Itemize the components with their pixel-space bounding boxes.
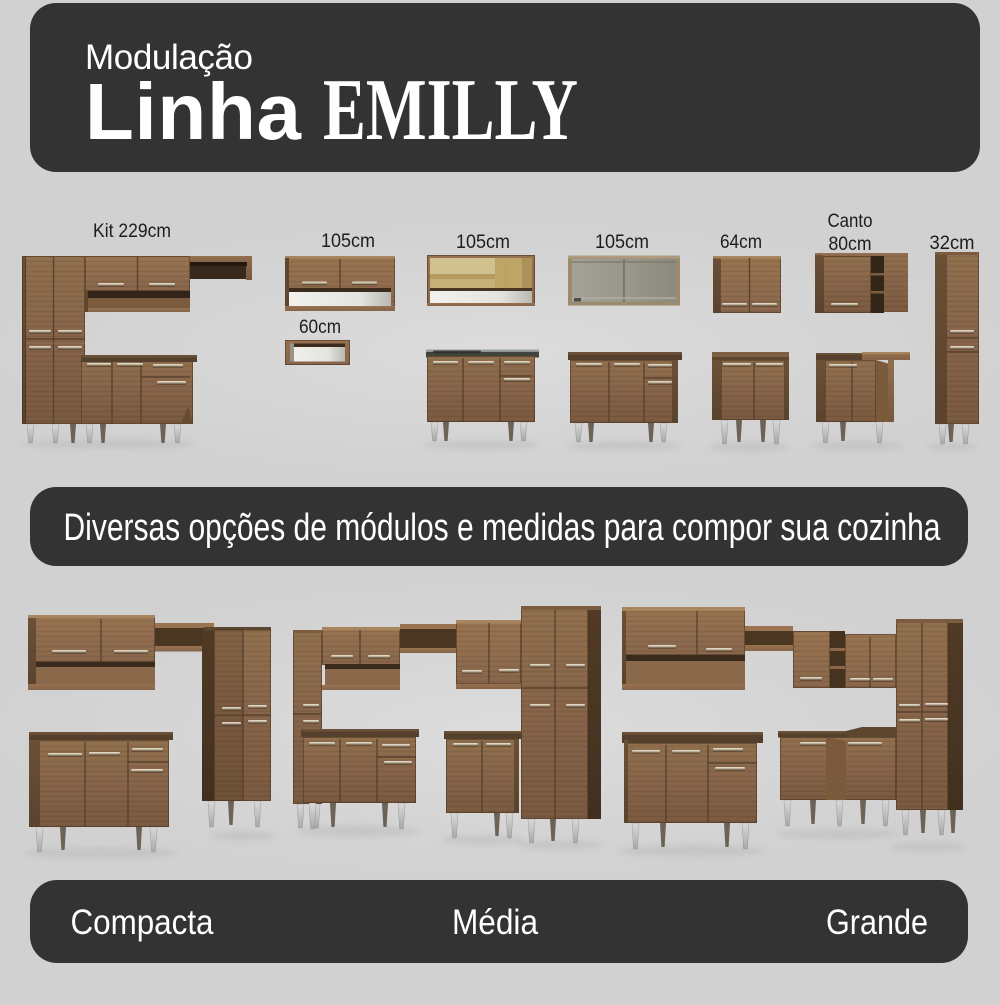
svg-text:Canto: Canto <box>828 210 873 232</box>
svg-text:64cm: 64cm <box>720 231 762 253</box>
svg-text:105cm: 105cm <box>456 231 510 253</box>
svg-text:80cm: 80cm <box>829 233 872 255</box>
svg-text:Média: Média <box>452 903 538 942</box>
svg-text:Compacta: Compacta <box>71 903 214 942</box>
svg-text:105cm: 105cm <box>595 231 649 253</box>
svg-text:105cm: 105cm <box>321 230 375 252</box>
svg-text:EMILLY: EMILLY <box>323 62 578 159</box>
svg-text:Grande: Grande <box>826 903 928 942</box>
svg-text:Linha: Linha <box>85 67 302 156</box>
svg-text:Kit 229cm: Kit 229cm <box>93 220 171 242</box>
svg-text:Diversas opções de módulos e m: Diversas opções de módulos e medidas par… <box>64 507 942 549</box>
svg-text:32cm: 32cm <box>930 232 975 254</box>
svg-text:60cm: 60cm <box>299 316 341 338</box>
